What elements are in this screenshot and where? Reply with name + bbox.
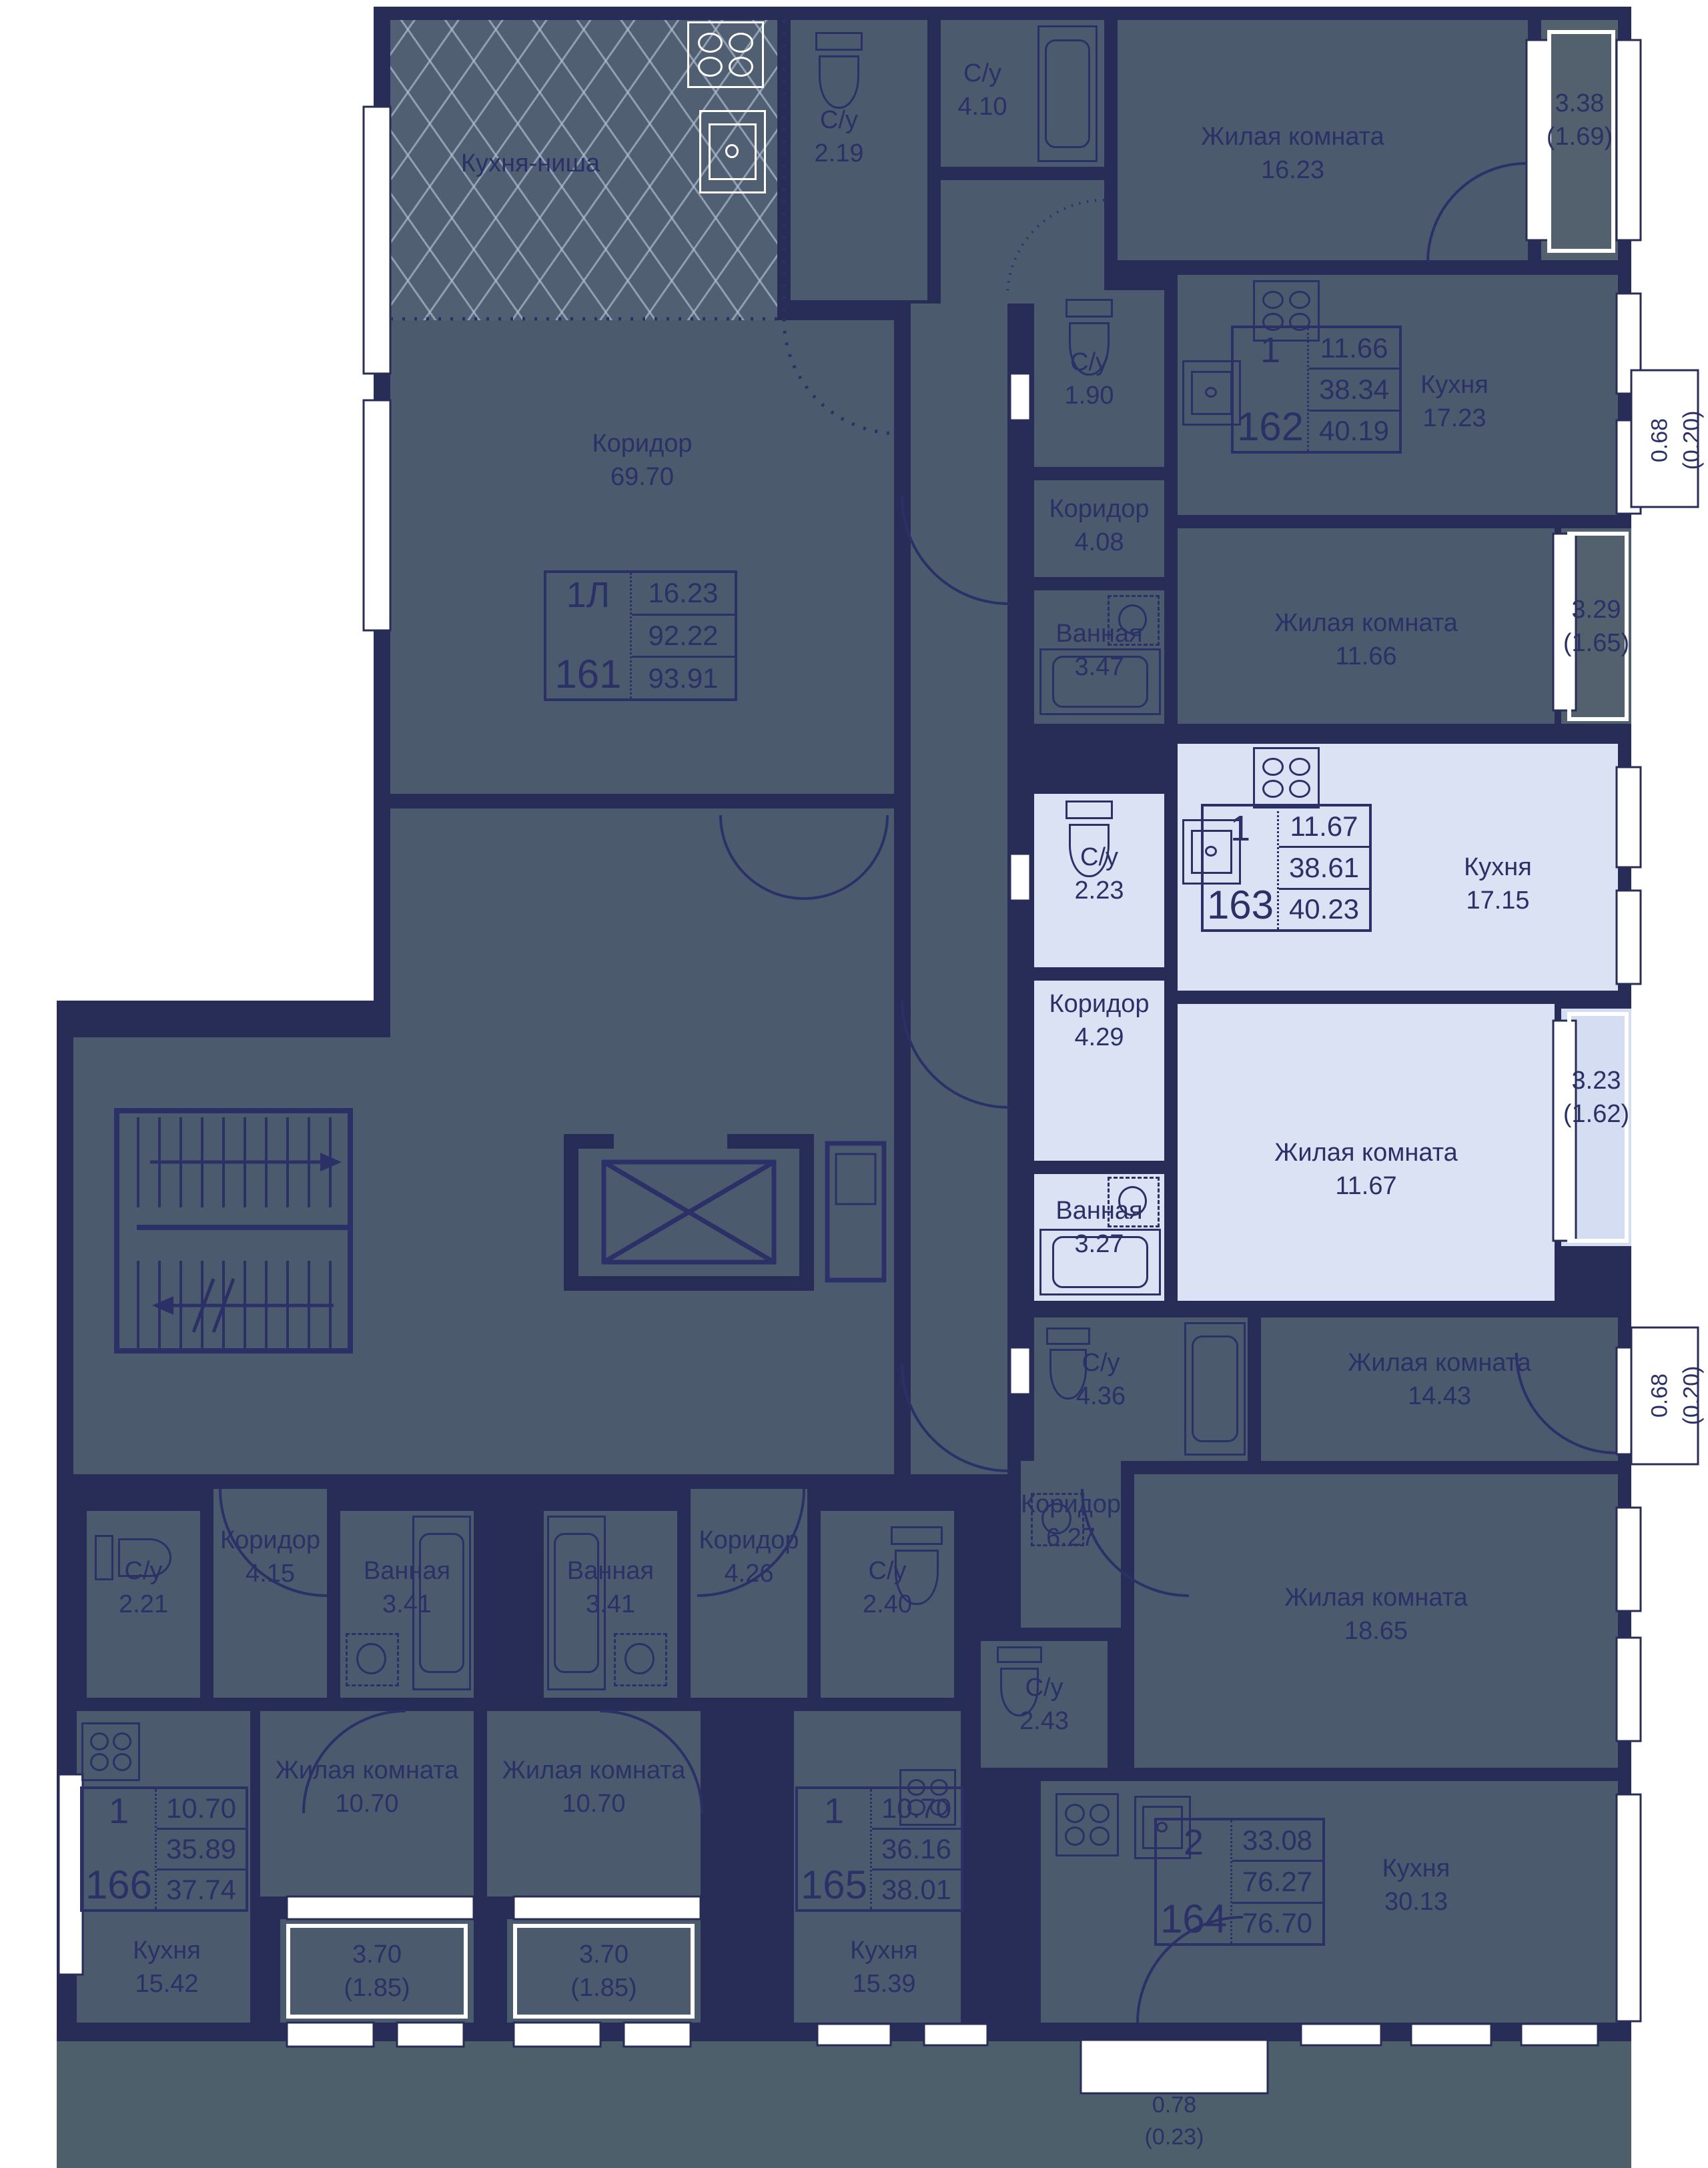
room-living-11-66[interactable] (1178, 528, 1555, 724)
room-su-4-36[interactable] (1034, 1317, 1248, 1461)
room-link-corridor (390, 808, 894, 1037)
room-corridor-69-70[interactable] (390, 320, 894, 794)
room-balcony-3-23[interactable] (1561, 1009, 1631, 1246)
room-kitchen-15-39[interactable] (794, 1711, 961, 2023)
room-living-16-23[interactable] (1118, 20, 1528, 260)
room-vestibule-161 (941, 180, 1104, 304)
room-spine-corridor (911, 304, 1007, 1474)
room-kitchen-17-15[interactable] (1178, 744, 1618, 991)
room-corridor-4-29[interactable] (1034, 981, 1164, 1161)
room-kitchen-17-23[interactable] (1178, 275, 1618, 515)
room-bath-3-47[interactable] (1034, 590, 1164, 724)
room-bath-3-41-a[interactable] (340, 1511, 474, 1698)
room-balcony-3-29[interactable] (1561, 528, 1631, 724)
stair-treads-lower (137, 1261, 350, 1351)
room-su-1-90[interactable] (1034, 290, 1164, 467)
room-living-10-70-b[interactable] (487, 1711, 701, 1896)
room-su-2-23[interactable] (1034, 794, 1164, 967)
room-bath-3-41-b[interactable] (544, 1511, 677, 1698)
room-balcony-3-38[interactable] (1541, 20, 1618, 260)
room-kitchen-niche[interactable] (390, 20, 777, 320)
room-kitchen-30-13[interactable] (1041, 1781, 1618, 2023)
stair-landing-divider (137, 1225, 350, 1230)
room-corridor-4-08[interactable] (1034, 480, 1164, 577)
room-su-4-10[interactable] (941, 20, 1104, 167)
room-living-18-65[interactable] (1134, 1474, 1618, 1768)
room-living-11-67[interactable] (1178, 1004, 1555, 1301)
room-living-10-70-a[interactable] (260, 1711, 474, 1896)
room-su-2-19[interactable] (791, 20, 927, 300)
floor-plan: Кухня-нишаС/у2.19С/у4.10Жилая комната16.… (0, 0, 1708, 2168)
room-su-2-21[interactable] (87, 1511, 200, 1698)
room-balcony-3-70-b[interactable] (507, 1919, 701, 2023)
stair-treads-upper (137, 1117, 350, 1207)
room-balcony-3-70-a[interactable] (280, 1919, 474, 2023)
room-corridor-4-15[interactable] (213, 1489, 327, 1698)
room-bath-3-27[interactable] (1034, 1174, 1164, 1301)
room-corridor-6-27[interactable] (1021, 1461, 1121, 1628)
room-su-2-40[interactable] (821, 1511, 954, 1698)
room-kitchen-15-42[interactable] (77, 1711, 250, 2023)
room-su-2-43[interactable] (981, 1641, 1108, 1768)
room-corridor-4-26[interactable] (691, 1489, 807, 1698)
room-lobby (73, 1037, 894, 1474)
rooms-layer (0, 0, 1708, 2168)
room-living-14-43[interactable] (1261, 1317, 1618, 1461)
